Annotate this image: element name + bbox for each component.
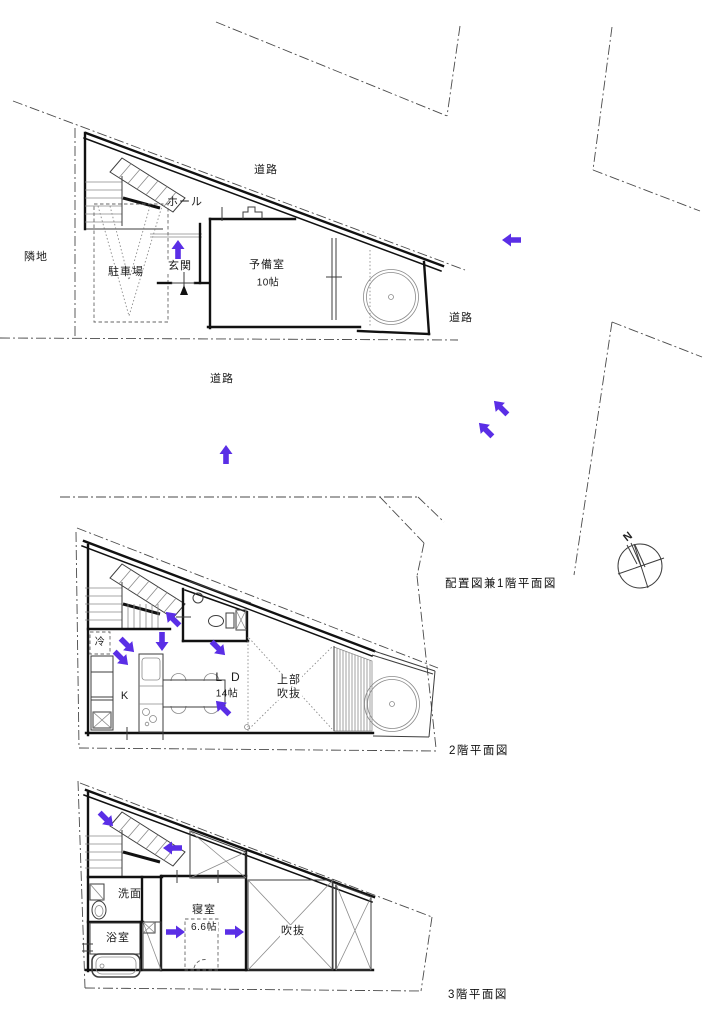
- flow-arrow-up-left-icon: [161, 607, 184, 630]
- floor3-plan-drawing: [82, 790, 374, 977]
- flow-arrow-left-icon: [502, 234, 521, 247]
- flow-arrow-down-icon: [156, 632, 169, 651]
- label-void-3f: 吹抜: [280, 925, 306, 937]
- label-living-dining-size: 14帖: [216, 685, 239, 700]
- label-refrigerator: 冷: [94, 637, 107, 649]
- void-panels: [190, 831, 371, 970]
- flow-arrow-right-icon: [225, 926, 244, 939]
- toilet-room: [176, 581, 251, 641]
- bathroom: [82, 922, 141, 977]
- label-void-above-1: 上部: [276, 674, 302, 686]
- staircase-1f: [85, 158, 185, 226]
- north-compass-icon: [618, 543, 664, 588]
- label-living-dining: L D: [215, 670, 242, 684]
- flow-arrow-up-icon: [172, 240, 185, 259]
- label-adjacent-lot: 隣地: [24, 248, 48, 264]
- round-court-2f: [365, 677, 420, 732]
- balcony-deck: [334, 647, 372, 731]
- site-boundary-lines: [0, 22, 702, 991]
- label-parking: 駐車場: [108, 263, 144, 279]
- label-bathroom: 浴室: [105, 932, 131, 944]
- label-washroom: 洗面: [118, 885, 142, 901]
- label-bedroom-size: 6.6帖: [190, 922, 218, 934]
- flow-arrow-down-right-icon: [95, 808, 118, 831]
- caption-floor1: 配置図兼1階平面図: [445, 575, 557, 591]
- closet: [143, 922, 161, 970]
- flow-arrow-right-icon: [166, 926, 185, 939]
- label-void-above-2: 吹抜: [276, 688, 302, 700]
- floor2-plan-drawing: [82, 541, 435, 740]
- flow-arrow-up-left-icon: [474, 418, 497, 441]
- label-hall: ホール: [167, 193, 203, 209]
- label-spare-room-size: 10帖: [257, 274, 280, 289]
- label-entrance: 玄関: [167, 260, 193, 272]
- label-kitchen: K: [121, 690, 129, 702]
- caption-floor2: 2階平面図: [449, 742, 509, 758]
- round-court-1f: [364, 270, 419, 325]
- flow-arrow-left-icon: [163, 842, 182, 855]
- label-spare-room: 予備室: [249, 256, 285, 272]
- label-road-right: 道路: [449, 309, 473, 325]
- flow-arrow-up-icon: [220, 445, 233, 464]
- kitchen-island: [139, 654, 163, 732]
- flow-arrow-up-left-icon: [489, 396, 512, 419]
- caption-floor3: 3階平面図: [448, 986, 508, 1002]
- label-road-bottom: 道路: [210, 370, 234, 386]
- label-bedroom: 寝室: [191, 904, 217, 916]
- label-road-top: 道路: [254, 161, 278, 177]
- floor-plan-sheet: 道路 隣地 道路 道路 N ホール 駐車場 玄関 予備室 10帖 配置図兼1階平…: [0, 0, 707, 1024]
- kitchen-cabinets: [91, 656, 113, 730]
- flow-arrow-up-left-icon: [211, 696, 234, 719]
